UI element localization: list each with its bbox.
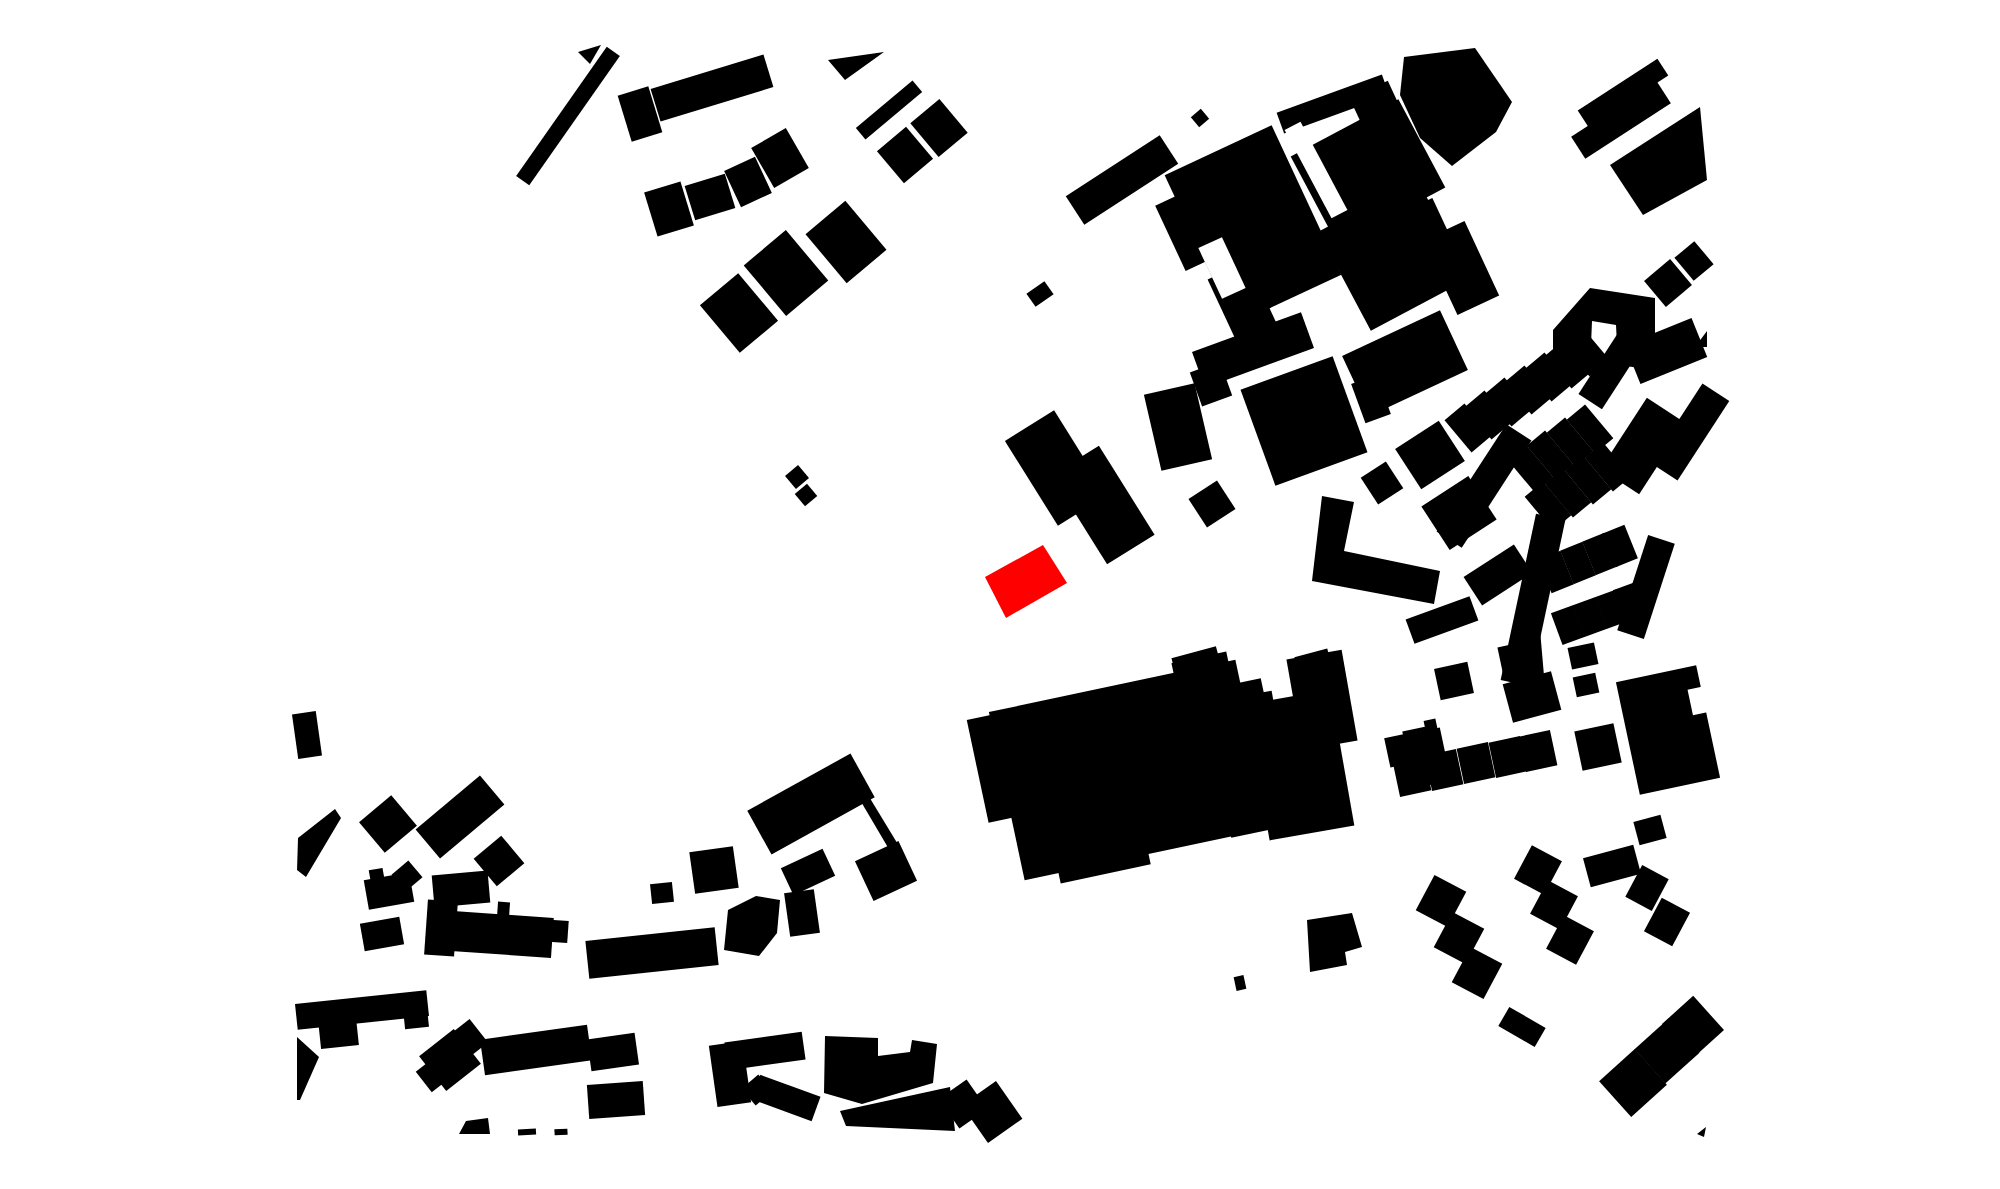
building-footprint — [518, 1129, 536, 1136]
building-footprint — [403, 1007, 429, 1029]
building-footprint — [855, 841, 917, 901]
building-footprint — [1188, 480, 1235, 527]
building-footprint — [1633, 815, 1666, 845]
building-footprint — [1697, 1127, 1706, 1137]
building-footprint — [1573, 673, 1600, 697]
building-footprint — [297, 1037, 319, 1100]
building-footprint — [650, 882, 674, 904]
building-footprint — [496, 902, 510, 933]
building-footprint — [480, 1025, 592, 1076]
building-footprint — [689, 846, 738, 894]
building-footprint — [1434, 662, 1474, 700]
site-plan-map-canvas — [0, 0, 2000, 1189]
building-footprint — [1457, 742, 1496, 784]
building-footprint — [516, 47, 620, 186]
building-footprint — [554, 1129, 567, 1136]
building-footprint — [360, 917, 404, 952]
building-footprint — [537, 919, 568, 943]
building-footprint — [651, 54, 774, 121]
building-footprint — [856, 80, 922, 139]
figure-ground-site-plan — [0, 0, 2000, 1189]
building-footprint — [587, 1033, 639, 1071]
building-footprint — [1234, 975, 1247, 991]
building-footprint — [292, 711, 322, 759]
building-footprint — [359, 795, 417, 853]
highlighted-building — [985, 545, 1067, 618]
building-footprint — [685, 174, 736, 221]
building-footprint — [317, 1007, 359, 1049]
building-footprint — [747, 754, 874, 855]
building-footprint — [1616, 665, 1720, 795]
building-footprint — [297, 809, 341, 877]
building-footprint — [724, 896, 780, 956]
building-footprint — [1498, 1007, 1545, 1047]
building-footprint — [1361, 461, 1404, 504]
building-footprint — [369, 868, 386, 886]
building-footprint — [1307, 913, 1362, 972]
building-footprint — [1026, 281, 1053, 307]
building-footprint — [1568, 642, 1599, 669]
building-footprint — [1312, 496, 1440, 604]
building-footprint — [1583, 845, 1641, 887]
building-footprint — [1574, 723, 1621, 770]
building-footprint — [459, 1118, 490, 1134]
building-footprint — [724, 1032, 805, 1071]
building-footprint — [587, 1081, 645, 1119]
building-footprint — [784, 889, 820, 937]
building-footprint — [781, 849, 835, 896]
building-footprint — [585, 927, 718, 978]
building-footprint — [436, 910, 554, 958]
building-footprint — [1406, 596, 1479, 644]
building-footprint — [828, 52, 884, 80]
building-footprint — [1191, 109, 1209, 127]
building-footprint — [1241, 356, 1368, 485]
